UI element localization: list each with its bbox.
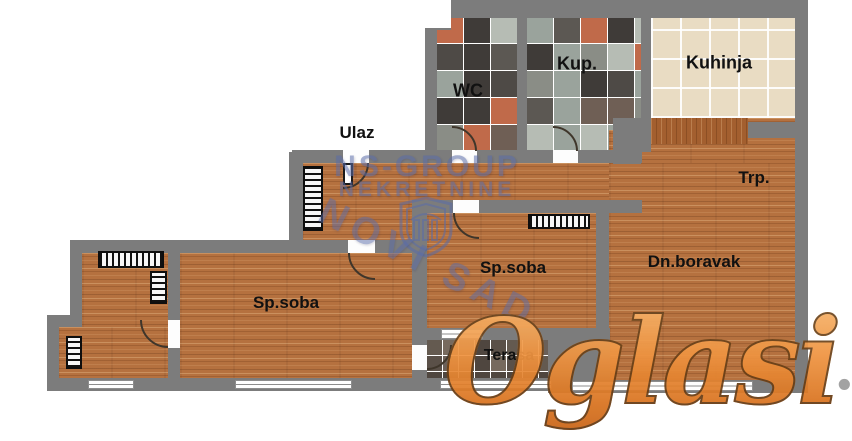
- floor-tile: [491, 17, 517, 43]
- portal-watermark-tld: .rs: [834, 334, 852, 404]
- floor-tile: [527, 125, 553, 150]
- floor-tile: [608, 17, 634, 43]
- bathroom-door-arc: [553, 126, 578, 151]
- floor-plan: WC Kup. Kuhinja Ulaz Trp. Dn.boravak Sp.…: [0, 0, 852, 441]
- floor-tile: [581, 17, 607, 43]
- portal-watermark-name: Oglasi: [444, 292, 838, 431]
- floor-tile: [581, 71, 607, 97]
- wall: [641, 17, 651, 152]
- window: [235, 380, 352, 389]
- bedroom2-door-arc: [453, 213, 479, 239]
- wall: [289, 152, 303, 253]
- room-label-trpezarija: Trp.: [738, 168, 769, 188]
- floor-tile: [527, 71, 553, 97]
- wall: [168, 348, 180, 378]
- floor-tile: [608, 71, 634, 97]
- wall: [168, 253, 180, 320]
- room-label-kuhinja: Kuhinja: [686, 53, 752, 74]
- kitchen-threshold: [651, 118, 748, 144]
- window: [88, 380, 134, 389]
- floor-tile: [464, 17, 490, 43]
- portal-watermark: Oglasi.rs: [444, 294, 852, 430]
- room-label-spavaca-soba-1: Sp.soba: [253, 293, 319, 313]
- floor-tile: [581, 98, 607, 124]
- floor-tile: [554, 17, 580, 43]
- floor-tile: [581, 125, 607, 150]
- room-label-dnevni-boravak: Dn.boravak: [648, 252, 741, 272]
- floor-tile: [491, 125, 517, 150]
- room-label-wc: WC: [453, 81, 483, 102]
- radiator: [66, 336, 82, 369]
- floor-tile: [527, 98, 553, 124]
- radiator: [528, 214, 590, 229]
- terrace-door-opening: [412, 345, 427, 370]
- floor-tile: [527, 44, 553, 70]
- floor-tile: [608, 44, 634, 70]
- room-label-ulaz: Ulaz: [340, 123, 375, 143]
- floor-tile: [527, 17, 553, 43]
- floor-tile: [437, 98, 463, 124]
- floor-tile: [464, 44, 490, 70]
- floor-tile: [491, 44, 517, 70]
- floor-tile: [491, 71, 517, 97]
- wall: [425, 28, 437, 162]
- wall: [449, 0, 808, 18]
- wall: [70, 240, 82, 327]
- floor-tile: [491, 98, 517, 124]
- floor-tile: [554, 98, 580, 124]
- wall: [613, 118, 641, 164]
- closet: [150, 271, 167, 304]
- room-label-kupatilo: Kup.: [557, 54, 597, 75]
- wall: [517, 17, 527, 150]
- floor-tile: [464, 98, 490, 124]
- wall-notch: [425, 0, 451, 28]
- floor-tile: [437, 44, 463, 70]
- closet: [98, 251, 164, 268]
- bedroom1-floor: [180, 253, 412, 378]
- wc-door-arc: [452, 126, 477, 151]
- hall-door-arc: [140, 320, 168, 348]
- floor-tile: [554, 71, 580, 97]
- hall-door-opening: [168, 320, 180, 348]
- wall: [748, 122, 795, 138]
- bathroom-door-opening: [553, 150, 578, 163]
